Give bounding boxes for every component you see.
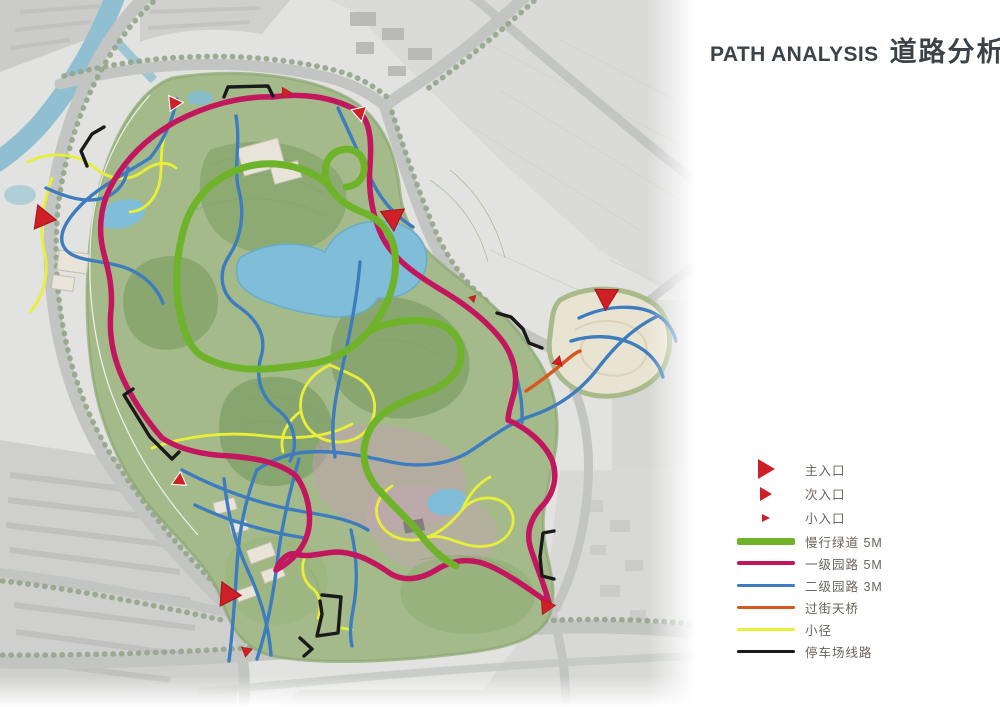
trail-line-icon xyxy=(737,628,795,631)
legend: 主入口 次入口 小入口 慢行绿道 5M 一级园路 5M 二级园路 3M 过街天桥 xyxy=(736,456,966,662)
legend-label: 停车场线路 xyxy=(805,642,873,661)
secondary-road-line-icon xyxy=(737,584,795,587)
path-analysis-page: PATH ANALYSIS 道路分析 主入口 次入口 小入口 慢行绿道 5M 一… xyxy=(0,0,1000,707)
legend-label: 小入口 xyxy=(805,508,846,527)
secondary-entrance-icon xyxy=(760,487,772,501)
small-entrance-icon xyxy=(762,514,770,522)
legend-item-small-entrance: 小入口 xyxy=(736,505,966,530)
legend-item-primary-road: 一级园路 5M xyxy=(736,552,966,574)
park-map xyxy=(0,0,695,707)
title-en: PATH ANALYSIS xyxy=(710,43,879,67)
map-svg xyxy=(0,0,695,707)
legend-label: 二级园路 3M xyxy=(805,576,883,595)
legend-item-bridge: 过街天桥 xyxy=(736,596,966,618)
legend-item-greenway: 慢行绿道 5M xyxy=(736,530,966,552)
title-zh: 道路分析 xyxy=(890,30,1000,69)
primary-road-line-icon xyxy=(737,561,795,565)
legend-label: 次入口 xyxy=(805,484,846,503)
legend-item-main-entrance: 主入口 xyxy=(736,456,966,482)
bridge-line-icon xyxy=(737,606,795,609)
parking-line-icon xyxy=(737,650,795,653)
legend-label: 一级园路 5M xyxy=(805,554,883,573)
legend-item-secondary-road: 二级园路 3M xyxy=(736,574,966,596)
canal-pond xyxy=(4,185,36,205)
legend-item-trail: 小径 xyxy=(736,618,966,640)
legend-label: 主入口 xyxy=(805,460,846,479)
legend-item-parking: 停车场线路 xyxy=(736,640,966,662)
bottom-fade xyxy=(0,676,695,707)
right-fade xyxy=(648,0,695,707)
legend-label: 慢行绿道 5M xyxy=(805,532,883,551)
page-title: PATH ANALYSIS 道路分析 xyxy=(710,30,1000,69)
greenway-line-icon xyxy=(737,538,795,545)
legend-label: 小径 xyxy=(805,620,832,639)
main-entrance-icon xyxy=(758,459,775,479)
legend-item-secondary-entrance: 次入口 xyxy=(736,482,966,505)
legend-label: 过街天桥 xyxy=(805,598,859,617)
